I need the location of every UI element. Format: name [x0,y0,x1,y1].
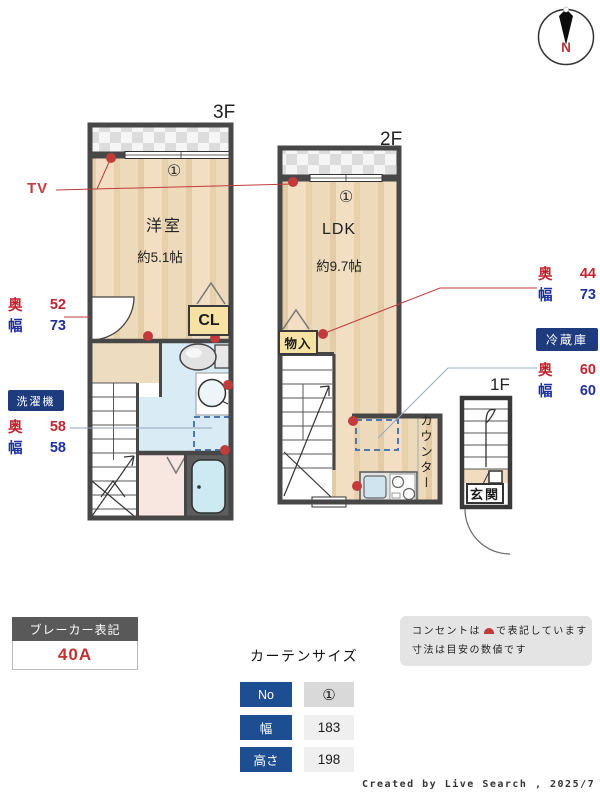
depth-label: 奥 [538,263,553,284]
compass-icon [539,7,594,65]
width-value: 73 [580,287,596,303]
fridge-dimensions: 奥 60 幅 60 [538,359,596,401]
depth-value: 44 [580,266,596,282]
credit-text: Created by Live Search , 2025/7 [362,779,595,790]
fridge-tag: 冷蔵庫 [536,328,598,351]
curtain-row-no-value: ① [304,682,354,707]
legend-line2: 寸法は目安の数値です [412,641,592,660]
breaker-value: 40A [12,641,138,670]
floor2-label: 2F [380,129,402,151]
closet-3f-dimensions: 奥 52 幅 73 [8,294,66,336]
floor3-label: 3F [213,102,235,124]
width-label: 幅 [538,284,553,305]
width-label: 幅 [8,315,23,336]
room-size-2f: 約9.7帖 [302,255,376,275]
entrance-label: 玄関 [470,484,500,503]
fridge-label: 冷蔵庫 [546,331,588,348]
width-value: 73 [50,318,66,334]
breaker-table: ブレーカー表記 40A [12,617,138,670]
toilet-tank [215,345,229,368]
width-label: 幅 [538,380,553,401]
washer-label: 洗濯機 [17,393,56,409]
wash-basin [199,380,226,407]
outlet-icon [484,628,494,634]
kitchen-sink [364,476,386,498]
tv-annotation: TV [27,180,48,197]
curtain-row-width-value: 183 [304,715,354,740]
legend-line1-after: で表記しています [496,626,588,637]
room-size-3f: 約5.1帖 [120,246,200,266]
storage-label: 物入 [284,333,311,352]
curtain-row-width-label: 幅 [240,715,292,740]
room-name-2f: LDK [314,221,364,239]
room-name-3f: 洋室 [134,212,194,236]
legend-line1-before: コンセントは [412,626,481,637]
storage-box: 物入 [278,330,318,355]
washer-tag: 洗濯機 [8,390,64,411]
breaker-title: ブレーカー表記 [12,617,138,641]
curtain-row-no-label: No [240,682,292,707]
washer-dimensions: 奥 58 幅 58 [8,416,66,458]
floor1-plan-graphic [462,398,510,554]
depth-label: 奥 [8,416,23,437]
depth-value: 60 [580,362,596,378]
depth-label: 奥 [538,359,553,380]
width-label: 幅 [8,437,23,458]
depth-value: 58 [50,419,66,435]
width-value: 60 [580,383,596,399]
storage-2f-dimensions: 奥 44 幅 73 [538,263,596,305]
closet-box: CL [188,305,230,336]
floor1-label: 1F [490,375,510,395]
legend-line1: コンセントはで表記しています [412,622,592,641]
depth-value: 52 [50,297,66,313]
entrance-door-arc [465,509,510,554]
floorplan-graphics [0,0,600,800]
closet-label: CL [198,312,219,330]
counter-label: カウンター [416,414,435,502]
floorplan-page: N 3F 2F 1F ① ① 洋室 約5.1帖 LDK 約9.7帖 CL 物入 … [0,0,600,800]
window-number-2f: ① [336,187,356,207]
legend-note: コンセントはで表記しています 寸法は目安の数値です [400,616,592,666]
window-number-3f: ① [164,161,184,181]
depth-label: 奥 [8,294,23,315]
curtain-size-title: カーテンサイズ [250,646,358,666]
entrance-box: 玄関 [466,483,504,504]
compass-north-label: N [558,40,574,55]
curtain-row-height-value: 198 [304,747,354,772]
width-value: 58 [50,440,66,456]
curtain-row-height-label: 高さ [240,747,292,772]
